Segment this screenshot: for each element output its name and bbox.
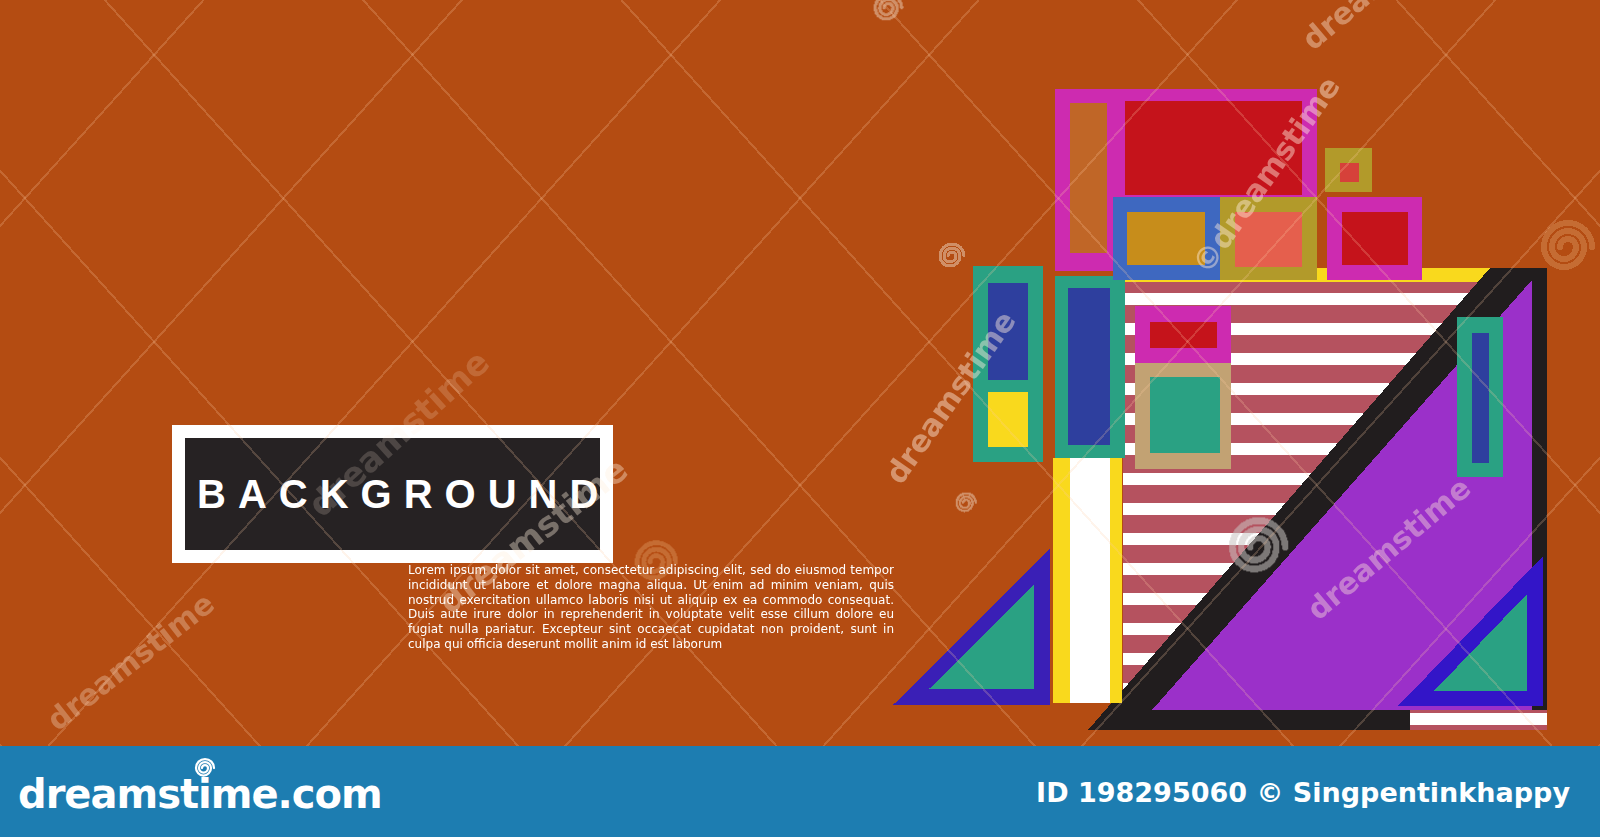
spiral-icon bbox=[875, 0, 901, 19]
navy-inset-a bbox=[988, 283, 1028, 380]
footer-bar: dreamstime.com ID 198295060 © Singpentin… bbox=[0, 746, 1600, 837]
goldenrod-inner bbox=[1127, 212, 1205, 265]
red-big-block bbox=[1125, 101, 1302, 195]
salmon-inner bbox=[1235, 212, 1302, 267]
navy-bar-on-purple bbox=[1472, 333, 1489, 463]
red-square-inset bbox=[1342, 212, 1408, 265]
yellow-inset-a bbox=[988, 392, 1028, 447]
spiral-icon bbox=[957, 493, 976, 511]
abstract-artwork bbox=[0, 0, 1600, 837]
white-column bbox=[1070, 458, 1110, 703]
teal-inner-on-stripes bbox=[1150, 377, 1220, 453]
spiral-icon bbox=[940, 244, 964, 266]
orange-block bbox=[1070, 103, 1107, 253]
navy-inset-b bbox=[1068, 288, 1110, 445]
body-paragraph: Lorem ipsum dolor sit amet, consectetur … bbox=[408, 563, 894, 652]
image-credit: ID 198295060 © Singpentinkhappy bbox=[1036, 746, 1570, 837]
small-red-inset bbox=[1340, 163, 1359, 182]
title-box: BACKGROUND bbox=[185, 438, 600, 550]
title-frame: BACKGROUND bbox=[172, 425, 613, 563]
red-inner-on-stripes bbox=[1150, 322, 1217, 348]
page-title: BACKGROUND bbox=[185, 438, 600, 550]
spiral-icon bbox=[1544, 223, 1592, 267]
stock-image-preview: BACKGROUND Lorem ipsum dolor sit amet, c… bbox=[0, 0, 1600, 837]
logo-spiral-icon bbox=[188, 754, 222, 784]
